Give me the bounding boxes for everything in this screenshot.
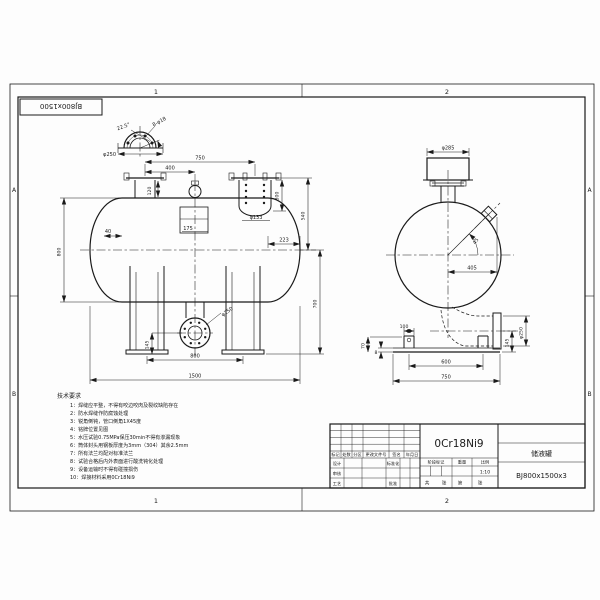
tb-role-check: 审核 xyxy=(333,470,342,477)
dim-top-left: 400 xyxy=(165,166,175,172)
dim-head-left: 40 xyxy=(105,229,111,235)
tb-role-standard: 标准化 xyxy=(387,460,400,467)
tb-drawing-no: BJ800x1500x3 xyxy=(516,472,567,480)
front-view: φ250 120 175 xyxy=(57,116,325,384)
dim-offset-405: 405 xyxy=(467,266,477,272)
zone-right-a: A xyxy=(587,187,592,194)
tb-pages-no: 第 xyxy=(458,480,463,487)
corner-stamp-text: BJ800x1500 xyxy=(40,102,82,110)
zone-top-2: 2 xyxy=(445,88,449,96)
tb-pages-total: 共 xyxy=(425,480,430,487)
tb-rev-sign: 签名 xyxy=(392,451,400,458)
dim-drain-dia: φ250 xyxy=(220,306,234,318)
dim-cap-dia: φ285 xyxy=(442,146,455,152)
tb-role-approve: 批准 xyxy=(389,480,397,487)
flange-detail: 22.5° 8-φ18 φ250 xyxy=(103,116,167,158)
dim-length: 1500 xyxy=(189,374,202,380)
dim-flange-dia: φ250 xyxy=(103,152,116,158)
dim-flange-angle: 22.5° xyxy=(116,122,131,132)
dim-dip-height: 300 xyxy=(275,192,281,201)
side-view: φ285 45 xyxy=(361,146,531,386)
dim-cl-to-base: 700 xyxy=(313,300,319,309)
cad-drawing: 1 2 1 2 A B A B BJ800x1500 xyxy=(0,0,600,600)
tb-role-design: 设计 xyxy=(333,460,341,467)
tb-header-stage: 阶段标记 xyxy=(428,459,446,466)
technical-notes: 技术要求 1：焊缝应平整，不得有咬边咬肉及裂纹缺陷存在 2：防水焊缝作防腐蚀处理… xyxy=(57,392,188,481)
zone-left-a: A xyxy=(12,187,17,194)
angled-nozzle: 45 xyxy=(448,203,500,255)
baffle-plate: 175 xyxy=(180,207,208,233)
title-block: 标记 处数 分区 更改文件号 签名 年月日 设计 标准化 审核 工艺 批准 0C… xyxy=(330,424,585,488)
note-line: 6：筒体封头用钢板厚度为3mm（304）其余2.5mm xyxy=(70,442,188,449)
zone-top-1: 1 xyxy=(154,88,158,96)
dim-head-right: 223 xyxy=(279,238,289,244)
dim-baffle: 175 xyxy=(183,226,193,232)
note-line: 1：焊缝应平整，不得有咬边咬肉及裂纹缺陷存在 xyxy=(70,402,178,409)
zone-left-b: B xyxy=(12,391,16,398)
dim-pipe-dia: φ250 xyxy=(519,327,525,339)
tb-pages-sheet1: 张 xyxy=(442,480,447,487)
dim-base-width: 750 xyxy=(441,375,451,381)
drawing-page: 1 2 1 2 A B A B BJ800x1500 xyxy=(0,0,600,600)
dim-plate-thickness: 8 xyxy=(375,350,378,356)
dim-diameter: 800 xyxy=(57,248,63,257)
dim-flange-to-cl: 540 xyxy=(301,212,307,221)
note-line: 9：设备运输时不得有碰撞损伤 xyxy=(70,466,138,473)
tb-rev-mark: 标记 xyxy=(331,451,340,458)
tb-scale-value: 1:10 xyxy=(480,470,490,476)
dim-top-span: 750 xyxy=(195,156,205,162)
tb-rev-count: 处数 xyxy=(342,451,351,458)
dim-foot-width: 100 xyxy=(400,324,409,330)
note-line: 7：所有法兰均配对标准法兰 xyxy=(70,450,133,457)
note-line: 8：试验合格后内外表面进行酸洗钝化处理 xyxy=(70,458,163,465)
note-line: 2：防水焊缝作防腐蚀处理 xyxy=(70,410,128,417)
tb-rev-doc: 更改文件号 xyxy=(366,451,387,458)
tb-rev-zone: 分区 xyxy=(353,451,361,458)
note-line: 5：水压试验0.75MPa保压30min不得有渗漏现象 xyxy=(70,434,180,441)
note-line: 3：锐角倒钝，管口倒角1X45度 xyxy=(70,418,141,425)
tb-pages-sheet2: 张 xyxy=(478,480,483,487)
dim-base-height: 70 xyxy=(361,343,367,349)
dim-saddle-span: 800 xyxy=(190,354,200,360)
tb-role-process: 工艺 xyxy=(333,481,341,486)
dim-drain-height: 145 xyxy=(145,341,151,350)
dim-foot-span: 600 xyxy=(441,360,451,366)
tb-header-weight: 重量 xyxy=(458,459,466,466)
dim-flange-holes: 8-φ18 xyxy=(152,116,168,128)
zone-right-b: B xyxy=(587,391,591,398)
tb-material: 0Cr18Ni9 xyxy=(434,438,483,450)
tb-rev-date: 年月日 xyxy=(406,451,419,458)
note-line: 10：焊接材料采用0Cr18Ni9 xyxy=(70,474,135,481)
note-line: 4：铭牌位置见图 xyxy=(70,426,108,433)
zone-bottom-2: 2 xyxy=(445,497,449,505)
dip-tube-nozzle: φ133 300 xyxy=(229,173,286,221)
tb-part-name: 储液罐 xyxy=(531,449,552,458)
zone-bottom-1: 1 xyxy=(154,497,158,505)
tb-header-scale: 比例 xyxy=(481,459,489,466)
dim-dip-dia: φ133 xyxy=(250,215,263,221)
side-base xyxy=(393,336,500,352)
dim-nozzle-height: 120 xyxy=(147,187,153,196)
notes-title: 技术要求 xyxy=(57,392,81,400)
top-left-nozzle: 120 xyxy=(124,173,166,198)
